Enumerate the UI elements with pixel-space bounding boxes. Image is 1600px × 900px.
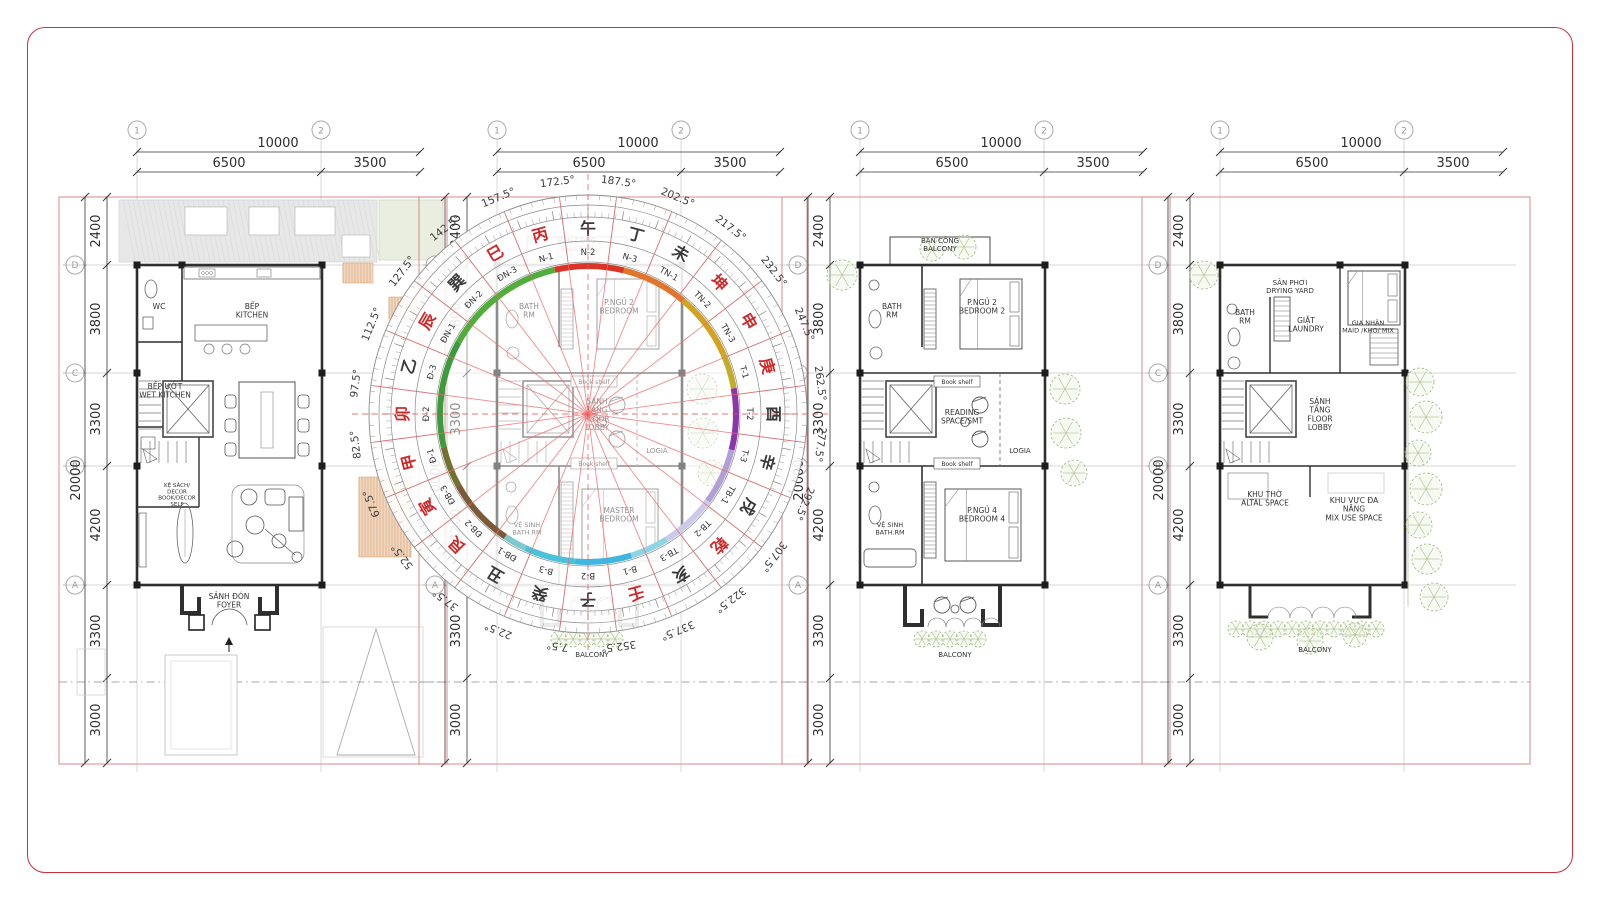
room-label: KHU THỜALTAL SPACE xyxy=(1241,490,1289,508)
degree-label: 277.5° xyxy=(812,426,829,463)
bookshelf-label: Book shelf xyxy=(941,461,973,468)
grid-bubble-label: 2 xyxy=(678,127,684,137)
drawing-sheet: 100006500350012DCBA240038003300420033003… xyxy=(0,0,1600,900)
tree-icon xyxy=(1405,440,1431,466)
dim-segment: 3300 xyxy=(1172,614,1187,647)
dim-segment: 3800 xyxy=(89,302,104,335)
degree-label: 202.5° xyxy=(659,186,696,211)
grid-bubble-label: A xyxy=(1155,581,1162,591)
chair-icon xyxy=(972,431,988,447)
tree-icon xyxy=(1050,374,1080,404)
dim-segment: 3300 xyxy=(89,402,104,435)
grid-bubble-label: 1 xyxy=(494,127,500,137)
floor-plan-panel-4: 100006500350012DCBA240038003300420033003… xyxy=(1140,107,1540,807)
degree-label: 247.5° xyxy=(792,306,817,343)
top-floor-plan: 100006500350012DCBA240038003300420033003… xyxy=(1140,107,1540,807)
dim-segment: 6500 xyxy=(1295,156,1328,171)
dim-total-height: 20000 xyxy=(69,459,84,500)
dim-total-height: 20000 xyxy=(1152,459,1167,500)
room-label: READINGSPACE/SMT xyxy=(941,408,984,426)
tree-icon xyxy=(1284,621,1300,637)
degree-label: 172.5° xyxy=(539,174,576,191)
tree-icon xyxy=(1051,418,1081,448)
dim-total-width: 10000 xyxy=(617,136,658,151)
tree-icon xyxy=(914,631,930,647)
degree-label: 157.5° xyxy=(480,186,517,211)
dim-total-width: 10000 xyxy=(1340,136,1381,151)
dim-segment: 3000 xyxy=(812,703,827,736)
balcony-bottom xyxy=(905,585,1000,647)
degree-label: 7.5° xyxy=(546,639,569,654)
grid-bubble-label: D xyxy=(72,261,79,271)
house-walls xyxy=(1190,261,1448,654)
room-label: SẢNH ĐÓNFOYER xyxy=(209,592,250,610)
dim-segment: 2400 xyxy=(89,214,104,247)
side-hedge xyxy=(1405,368,1448,611)
degree-label: 82.5° xyxy=(348,430,364,460)
dim-segment: 4200 xyxy=(89,508,104,541)
tree-icon xyxy=(942,631,958,647)
degree-label: 52.5° xyxy=(389,541,416,571)
tree-icon xyxy=(1247,624,1273,650)
grid-bubble-label: A xyxy=(72,581,79,591)
bed-icon xyxy=(945,489,1021,561)
tree-icon xyxy=(956,631,972,647)
tree-icon xyxy=(1410,401,1442,433)
degree-label: 352.5° xyxy=(600,638,637,655)
tree-icon xyxy=(1190,261,1218,289)
top-dimensions: 1000065003500 xyxy=(1216,136,1507,176)
chair-icon xyxy=(960,597,976,613)
degree-label: 337.5° xyxy=(659,618,696,643)
tree-icon xyxy=(970,631,986,647)
degree-label: 187.5° xyxy=(600,174,637,191)
tree-icon xyxy=(1228,621,1244,637)
degree-label: 22.5° xyxy=(483,619,514,641)
grid-bubble-label: 2 xyxy=(1041,127,1047,137)
tree-icon xyxy=(928,631,944,647)
chair-icon xyxy=(934,597,950,613)
grid-bubble-label: 2 xyxy=(318,127,324,137)
balcony-bottom xyxy=(1228,585,1384,654)
luopan-compass-svg: 7.5°22.5°37.5°52.5°67.5°82.5°97.5°112.5°… xyxy=(328,154,848,674)
grid-bubble-label: D xyxy=(1155,261,1162,271)
degree-label: 67.5° xyxy=(361,488,383,519)
left-dimensions: 24003800330042003300300020000 xyxy=(1152,193,1194,767)
luopan-compass: 7.5°22.5°37.5°52.5°67.5°82.5°97.5°112.5°… xyxy=(328,154,848,674)
room-label: VỆ SINHBATH.RM xyxy=(875,520,904,536)
room-label: SẢNHTẦNGFLOORLOBBY xyxy=(1307,397,1332,432)
dim-segment: 3000 xyxy=(449,703,464,736)
dim-segment: 3800 xyxy=(1172,302,1187,335)
degree-label: 97.5° xyxy=(348,368,364,398)
dim-segment: 4200 xyxy=(1172,508,1187,541)
dim-segment: 3000 xyxy=(1172,703,1187,736)
dim-segment: 6500 xyxy=(935,156,968,171)
degree-label: 112.5° xyxy=(360,306,385,343)
dim-segment: 3000 xyxy=(89,703,104,736)
tree-icon xyxy=(1410,473,1442,505)
dim-segment: 2400 xyxy=(1172,214,1187,247)
room-label: WC xyxy=(153,302,166,311)
house-walls xyxy=(827,235,1087,647)
grid-bubble-label: 1 xyxy=(134,127,140,137)
tree-icon xyxy=(1406,512,1432,538)
dim-segment: 6500 xyxy=(212,156,245,171)
degree-label: 37.5° xyxy=(431,586,461,613)
tree-icon xyxy=(1420,583,1448,611)
grid-bubble-label: C xyxy=(1155,369,1161,379)
tree-icon xyxy=(1343,623,1367,647)
room-label: LOGIA xyxy=(1009,447,1031,455)
sector-label: T-2 xyxy=(744,407,754,421)
grid-bubble-label: 1 xyxy=(1217,127,1223,137)
bookshelf-label: Book shelf xyxy=(941,379,973,386)
dim-segment: 3500 xyxy=(1436,156,1469,171)
tree-icon xyxy=(1368,621,1384,637)
grid-bubble-label: 2 xyxy=(1401,127,1407,137)
dim-total-width: 10000 xyxy=(257,136,298,151)
room-label: BAN CÔNGBALCONY xyxy=(921,236,959,253)
tree-icon xyxy=(1412,544,1442,574)
degree-label: 292.5° xyxy=(792,485,817,522)
entry-arrow-icon xyxy=(225,637,233,652)
tree-icon xyxy=(1061,460,1087,486)
room-label: SÂN PHƠIDRYING YARD xyxy=(1266,278,1314,295)
bed-icon xyxy=(1348,271,1400,325)
top-dimensions: 1000065003500 xyxy=(856,136,1147,176)
dim-segment: 3500 xyxy=(1076,156,1109,171)
grid-bubble-label: 1 xyxy=(857,127,863,137)
room-label: BALCONY xyxy=(1298,646,1332,654)
tree-icon xyxy=(1326,621,1342,637)
dim-total-width: 10000 xyxy=(980,136,1021,151)
degree-label: 262.5° xyxy=(812,365,829,402)
dim-segment: 3300 xyxy=(89,614,104,647)
grid-bubble-label: C xyxy=(72,369,78,379)
room-label: BALCONY xyxy=(938,651,972,659)
dim-segment: 3300 xyxy=(1172,402,1187,435)
tree-icon xyxy=(1406,368,1434,396)
